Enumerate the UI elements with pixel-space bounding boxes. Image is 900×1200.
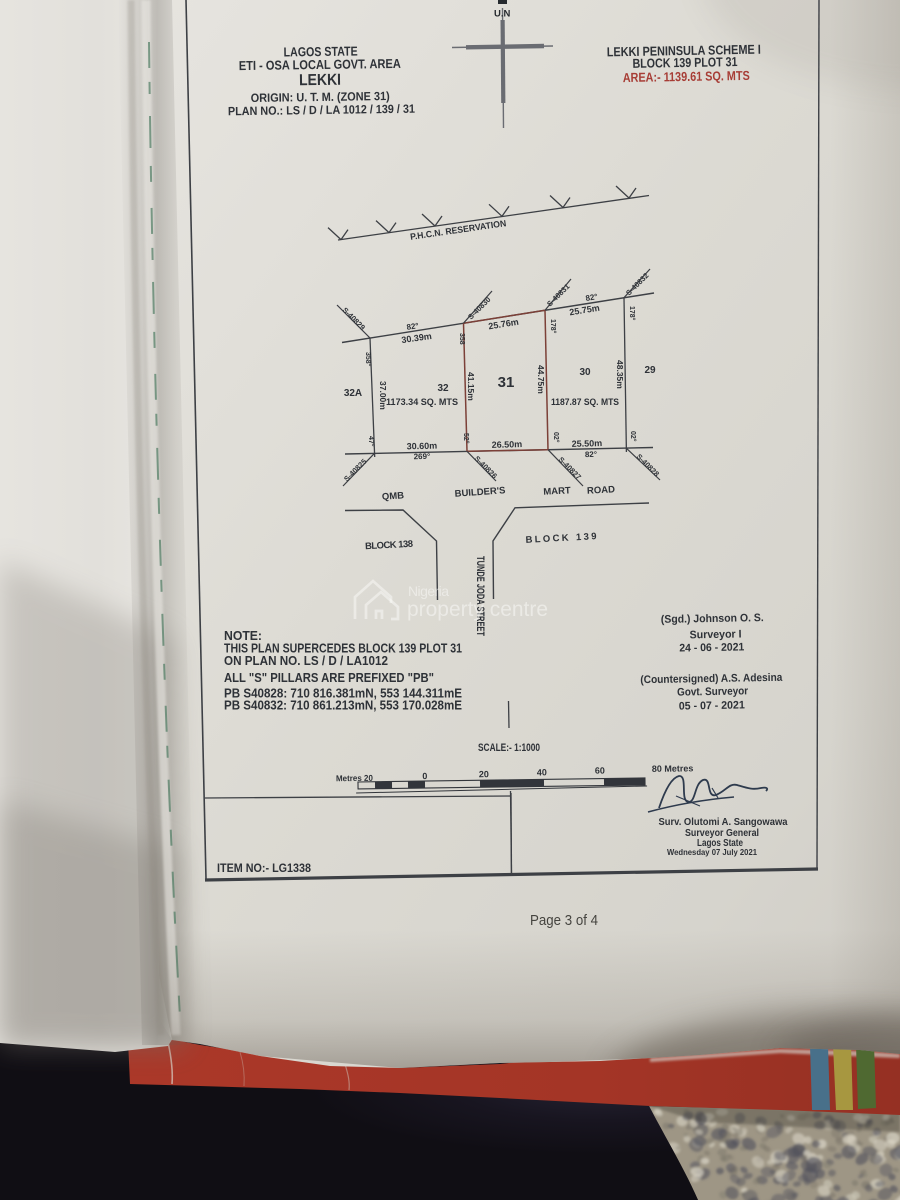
svg-text:80 Metres: 80 Metres <box>652 763 694 774</box>
svg-text:178°: 178° <box>549 319 557 334</box>
svg-text:40: 40 <box>537 767 547 777</box>
svg-text:178°: 178° <box>628 306 636 321</box>
svg-text:52°: 52° <box>462 433 470 444</box>
svg-text:05 - 07 - 2021: 05 - 07 - 2021 <box>679 699 745 712</box>
svg-text:26.50m: 26.50m <box>492 439 523 450</box>
svg-text:ITEM NO:- LG1338: ITEM NO:- LG1338 <box>217 861 311 875</box>
svg-text:(Countersigned) A.S. Adesina: (Countersigned) A.S. Adesina <box>640 672 783 686</box>
svg-text:32A: 32A <box>344 388 362 399</box>
svg-text:Wednesday 07 July 2021: Wednesday 07 July 2021 <box>667 847 757 857</box>
svg-text:PB S40832: 710 861.213mN, 553: PB S40832: 710 861.213mN, 553 170.028mE <box>224 698 462 713</box>
svg-text:41.15m: 41.15m <box>466 372 476 401</box>
svg-text:SCALE:- 1:1000: SCALE:- 1:1000 <box>478 742 540 754</box>
svg-text:44.75m: 44.75m <box>536 365 546 394</box>
svg-text:(Sgd.) Johnson O. S.: (Sgd.) Johnson O. S. <box>661 612 764 626</box>
svg-text:32: 32 <box>437 383 449 394</box>
svg-text:358°: 358° <box>364 352 372 367</box>
svg-text:358: 358 <box>458 333 465 345</box>
svg-text:24 - 06 - 2021: 24 - 06 - 2021 <box>679 641 744 654</box>
svg-text:02°: 02° <box>629 431 637 442</box>
svg-text:82°: 82° <box>585 450 597 459</box>
svg-text:ALL "S" PILLARS ARE PREFIXED ": ALL "S" PILLARS ARE PREFIXED "PB" <box>224 670 434 685</box>
svg-text:ON PLAN NO. LS / D / LA1012: ON PLAN NO. LS / D / LA1012 <box>224 653 388 668</box>
svg-text:U.N: U.N <box>494 9 511 20</box>
svg-text:ROAD: ROAD <box>587 484 616 496</box>
svg-text:Govt. Surveyor: Govt. Surveyor <box>677 685 749 698</box>
svg-text:60: 60 <box>595 766 605 776</box>
svg-text:Surveyor I: Surveyor I <box>689 628 741 641</box>
svg-text:82°: 82° <box>406 321 419 332</box>
svg-text:Nigeria: Nigeria <box>408 583 449 599</box>
svg-text:48.35m: 48.35m <box>615 360 625 389</box>
svg-text:Surv. Olutomi A. Sangowawa: Surv. Olutomi A. Sangowawa <box>659 816 788 828</box>
svg-text:0: 0 <box>422 771 427 781</box>
svg-text:30.60m: 30.60m <box>407 441 438 452</box>
svg-text:property centre: property centre <box>407 598 548 621</box>
svg-text:1187.87 SQ. MTS: 1187.87 SQ. MTS <box>551 397 619 408</box>
svg-text:82°: 82° <box>585 292 598 303</box>
svg-text:20: 20 <box>479 769 489 779</box>
svg-text:31: 31 <box>498 374 515 391</box>
svg-text:MART: MART <box>543 485 571 497</box>
svg-text:ETI - OSA LOCAL GOVT. AREA: ETI - OSA LOCAL GOVT. AREA <box>239 56 402 73</box>
svg-text:AREA:- 1139.61 SQ. MTS: AREA:- 1139.61 SQ. MTS <box>623 68 751 85</box>
svg-text:25.50m: 25.50m <box>572 438 603 449</box>
svg-text:29: 29 <box>644 365 656 376</box>
svg-text:02°: 02° <box>552 432 560 443</box>
svg-text:QMB: QMB <box>382 490 405 503</box>
svg-text:Page 3 of 4: Page 3 of 4 <box>530 912 598 929</box>
svg-text:TUNDE JODA STREET: TUNDE JODA STREET <box>474 556 486 636</box>
svg-text:269°: 269° <box>414 452 431 461</box>
svg-text:47°: 47° <box>367 436 375 447</box>
svg-text:PLAN NO.: LS / D / LA 1012 / 1: PLAN NO.: LS / D / LA 1012 / 139 / 31 <box>228 102 415 119</box>
svg-text:30: 30 <box>579 367 591 378</box>
svg-text:1173.34 SQ. MTS: 1173.34 SQ. MTS <box>386 397 458 408</box>
svg-text:LEKKI: LEKKI <box>299 72 341 90</box>
